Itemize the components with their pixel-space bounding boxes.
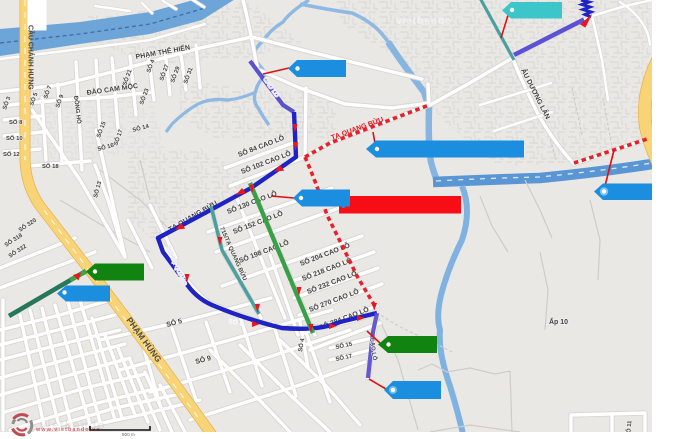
svg-text:SỐ 10: SỐ 10 (6, 135, 23, 142)
svg-text:SỐ 8: SỐ 8 (9, 119, 23, 126)
svg-text:SỐ 18: SỐ 18 (42, 163, 59, 170)
svg-text:vietbando: vietbando (396, 16, 452, 27)
svg-text:500 m: 500 m (122, 432, 135, 437)
svg-text:SỐ 12: SỐ 12 (3, 151, 20, 158)
